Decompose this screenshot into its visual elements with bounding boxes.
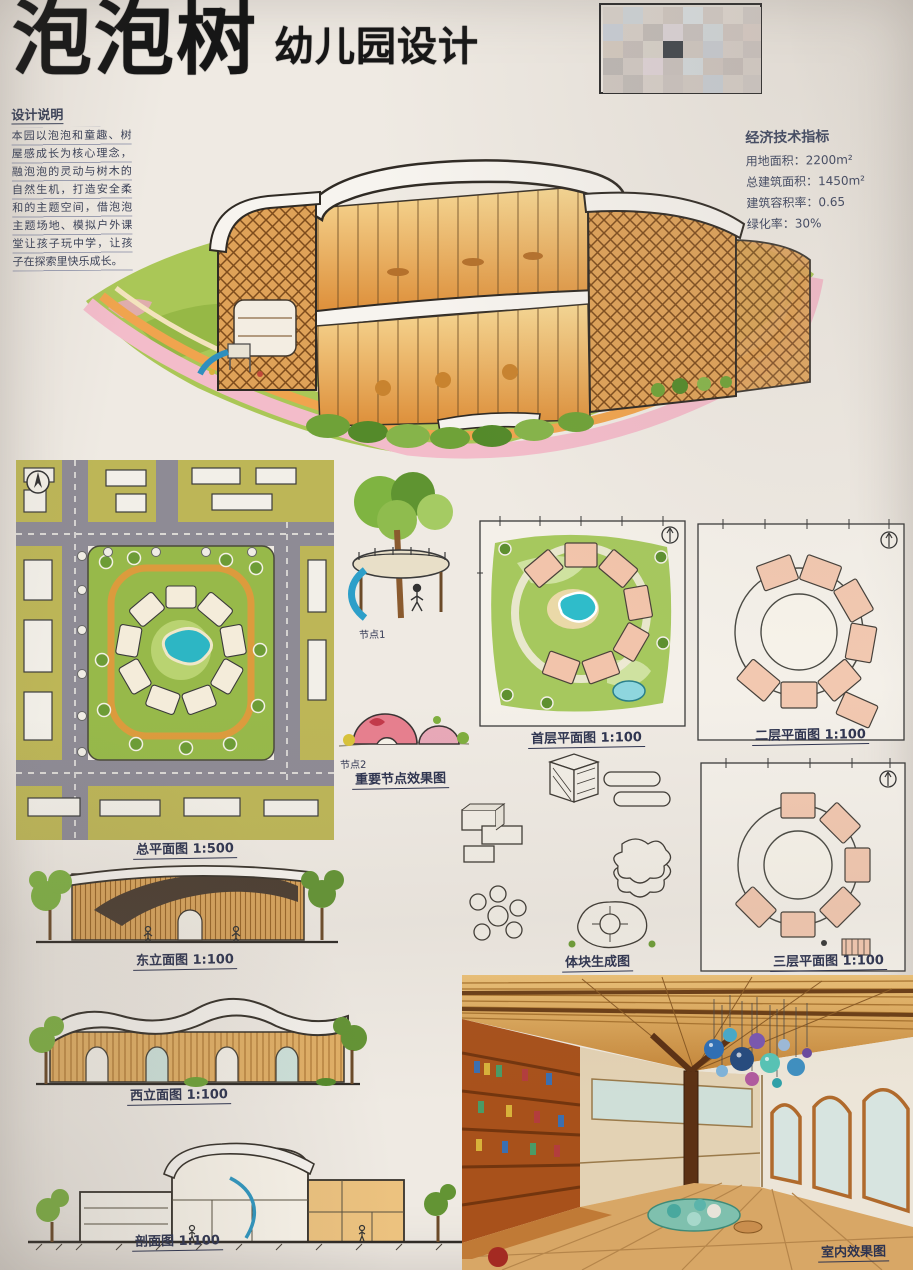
design-notes-body: 本园以泡泡和童趣、树屋感成长为核心理念，融泡泡的灵动与树木的自然生机，打造安全柔… xyxy=(11,126,132,271)
indicator-floor-area: 总建筑面积：1450m² xyxy=(746,170,913,194)
indicator-site-area: 用地面积：2200m² xyxy=(745,149,913,173)
title-main: 泡泡树 xyxy=(12,0,258,80)
slide xyxy=(352,570,366,618)
pond xyxy=(559,593,596,622)
label-node-renderings: 重要节点效果图 xyxy=(352,767,449,790)
first-floor-plan-drawing xyxy=(477,513,689,731)
tech-indicators-heading: 经济技术指标 xyxy=(745,125,913,148)
figure xyxy=(411,585,423,612)
label-east-elevation: 东立面图 1:100 xyxy=(133,948,237,971)
kindergarten-site xyxy=(88,546,274,760)
second-floor-plan-drawing xyxy=(693,512,911,750)
massing-diagram-drawing xyxy=(452,748,690,953)
label-node1: 节点1 xyxy=(356,626,389,643)
building-perspective-rendering xyxy=(78,96,826,474)
tech-indicators: 经济技术指标 用地面积：2200m² 总建筑面积：1450m² 建筑容积率：0.… xyxy=(745,125,913,236)
pool xyxy=(613,681,645,701)
censored-title-block xyxy=(598,2,766,101)
site-plan-drawing xyxy=(16,460,334,840)
label-site-plan: 总平面图 1:500 xyxy=(133,837,237,860)
title-sub: 幼儿园设计 xyxy=(274,14,479,72)
design-notes-heading: 设计说明 xyxy=(11,104,63,124)
section-drawing xyxy=(22,1128,468,1262)
label-third-floor-plan: 三层平面图 1:100 xyxy=(770,949,887,972)
design-notes: 设计说明 本园以泡泡和童趣、树屋感成长为核心理念，融泡泡的灵动与树木的自然生机，… xyxy=(11,103,132,271)
indicator-far: 建筑容积率：0.65 xyxy=(746,191,913,215)
page-title: 泡泡树 幼儿园设计 xyxy=(12,0,479,80)
play-tents-node-sketch xyxy=(333,686,473,756)
east-elevation-drawing xyxy=(28,852,346,962)
label-interior: 室内效果图 xyxy=(818,1240,889,1262)
label-massing: 体块生成图 xyxy=(562,950,633,972)
presentation-board: 泡泡树 幼儿园设计 设计说明 本园以泡泡和童趣、树屋感成长为核心理念，融泡泡的灵… xyxy=(0,0,913,1270)
interior-rendering xyxy=(462,975,913,1270)
label-section: 剖面图 1:100 xyxy=(132,1229,223,1252)
label-west-elevation: 西立面图 1:100 xyxy=(127,1083,231,1106)
pond xyxy=(163,628,211,664)
indicator-green-ratio: 绿化率：30% xyxy=(747,212,913,236)
treehouse-node-sketch xyxy=(335,468,465,628)
third-floor-plan-drawing xyxy=(696,753,911,981)
north-arrow-icon xyxy=(27,471,49,493)
label-second-floor-plan: 二层平面图 1:100 xyxy=(752,723,869,746)
mosaic-block xyxy=(598,2,766,97)
label-first-floor-plan: 首层平面图 1:100 xyxy=(528,726,645,749)
